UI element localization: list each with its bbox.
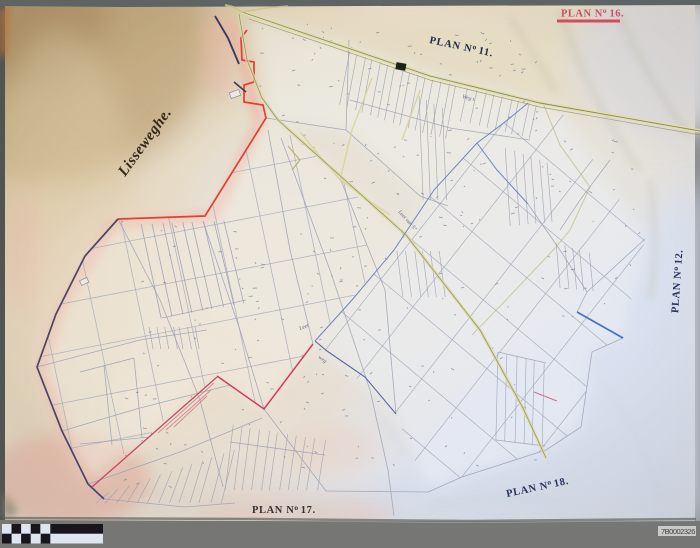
svg-text:PLAN No17.: PLAN No17. bbox=[252, 503, 316, 516]
svg-text:PLAN No16.: PLAN No16. bbox=[561, 6, 624, 20]
svg-text:7B0002326: 7B0002326 bbox=[661, 527, 695, 536]
